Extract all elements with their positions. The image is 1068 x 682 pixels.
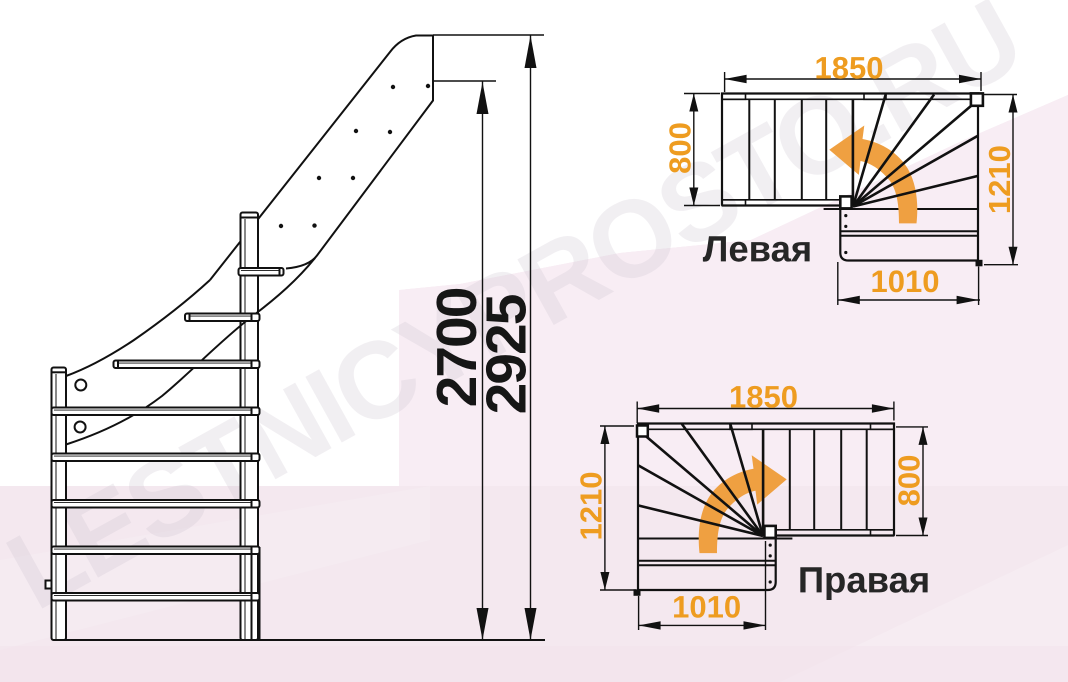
svg-text:800: 800 [892, 455, 927, 507]
svg-text:2925: 2925 [475, 294, 539, 414]
svg-text:Правая: Правая [798, 559, 930, 600]
svg-text:1210: 1210 [574, 472, 609, 541]
svg-text:1010: 1010 [672, 589, 741, 624]
svg-text:800: 800 [663, 122, 698, 174]
svg-text:1850: 1850 [815, 50, 884, 85]
svg-text:Левая: Левая [703, 228, 812, 269]
svg-text:1210: 1210 [982, 145, 1017, 214]
svg-text:1010: 1010 [871, 264, 940, 299]
svg-text:1850: 1850 [729, 379, 798, 414]
